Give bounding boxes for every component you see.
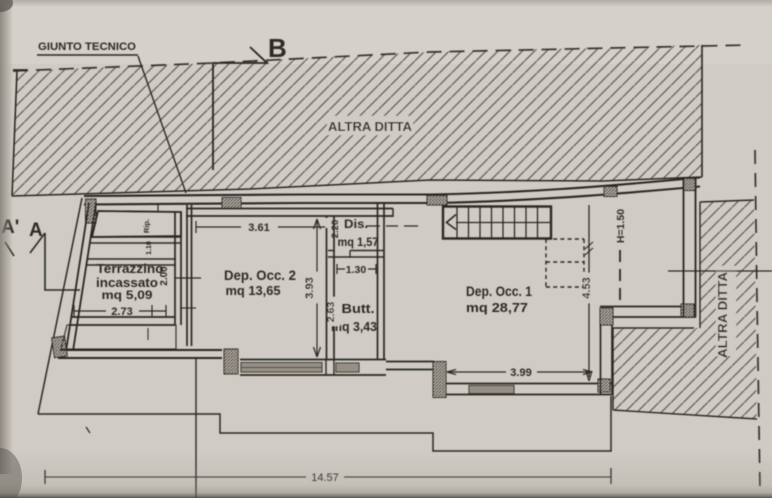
svg-text:H=1.50: H=1.50 (615, 209, 627, 243)
svg-text:4.53: 4.53 (581, 277, 593, 298)
svg-text:B: B (268, 33, 287, 63)
svg-text:ALTRA DITTA: ALTRA DITTA (716, 272, 730, 358)
svg-text:3.61: 3.61 (248, 222, 269, 234)
svg-text:mq 28,77: mq 28,77 (466, 300, 528, 315)
svg-text:1.30: 1.30 (346, 264, 367, 276)
svg-text:3.99: 3.99 (510, 367, 531, 379)
svg-text:1.10: 1.10 (146, 241, 153, 255)
svg-text:Terrazzino: Terrazzino (97, 262, 164, 276)
svg-text:2.00: 2.00 (159, 266, 170, 286)
svg-text:mq 1,57: mq 1,57 (338, 237, 379, 249)
svg-text:mq 13,65: mq 13,65 (226, 283, 281, 298)
svg-text:Dep. Occ. 2: Dep. Occ. 2 (224, 268, 296, 283)
svg-text:ALTRA DITTA: ALTRA DITTA (328, 119, 413, 134)
svg-text:Rip.: Rip. (142, 219, 151, 233)
svg-text:Butt.: Butt. (342, 301, 375, 316)
svg-text:2.20: 2.20 (330, 220, 341, 239)
svg-text:Dis.: Dis. (344, 217, 368, 231)
svg-text:Dep. Occ. 1: Dep. Occ. 1 (466, 284, 532, 299)
svg-text:2.63: 2.63 (325, 302, 337, 323)
svg-text:mq 5,09: mq 5,09 (102, 288, 153, 302)
svg-text:GIUNTO TECNICO: GIUNTO TECNICO (38, 41, 136, 53)
svg-text:3.93: 3.93 (304, 277, 316, 298)
